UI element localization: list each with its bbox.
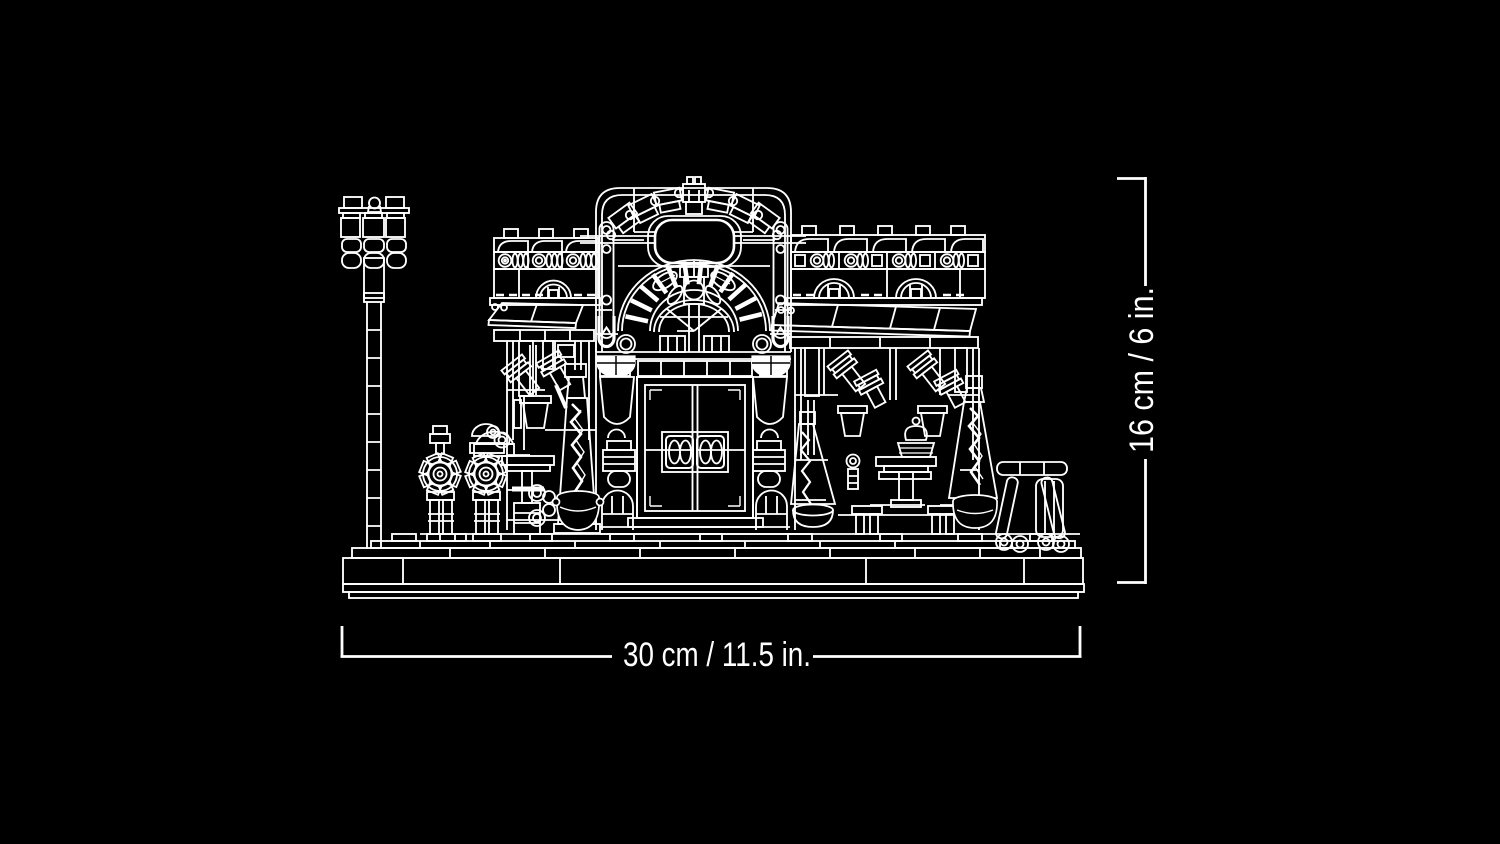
svg-text:16 cm / 6 in.: 16 cm / 6 in. — [1123, 287, 1161, 453]
svg-text:30 cm / 11.5 in.: 30 cm / 11.5 in. — [623, 636, 811, 674]
